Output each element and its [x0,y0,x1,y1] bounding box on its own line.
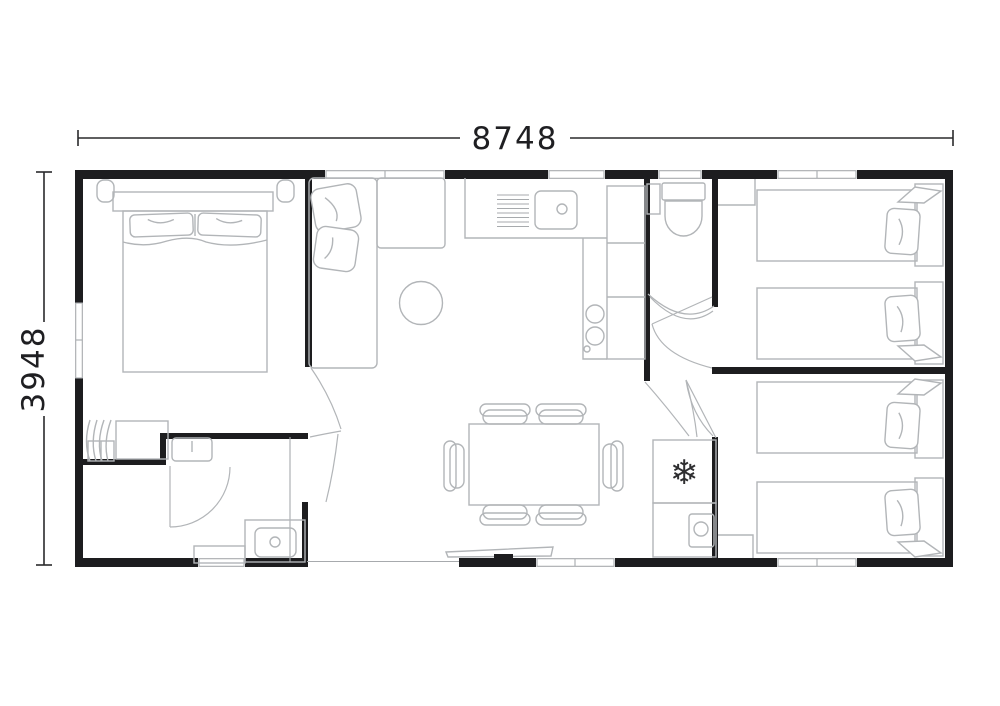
hob-burner [586,327,604,345]
dining-table [469,424,599,505]
pillow [885,489,921,536]
window [659,171,701,179]
washbasin [172,438,212,461]
chair [536,505,586,525]
master-bedroom [87,180,295,461]
wc [647,183,714,319]
window [326,171,444,179]
door-leaf [652,297,712,324]
toilet-tank [662,183,705,200]
nightstand-left [97,180,114,202]
height-dimension-label: 3948 [16,326,52,413]
dimension-left: 3948 [16,172,52,565]
duvet-fold [123,238,267,245]
entrance-door-hinge [494,554,513,564]
shower-drain [270,537,280,547]
fridge-icon: ❄ [670,453,699,493]
headboard [113,192,273,211]
pillow [310,182,363,233]
cabinet [653,503,716,557]
floor-plan-page: 8748 3948 [0,0,1000,706]
floor-plan-canvas: 8748 3948 [0,0,1000,706]
sink-drain [557,204,567,214]
pillow [130,213,194,237]
sofa-corner [377,178,445,248]
window [778,171,856,179]
window [549,171,604,179]
door-leaf [686,380,716,438]
bathroom [170,437,305,563]
closet [718,179,755,205]
living-room [309,178,445,368]
bedroom-3 [718,379,943,558]
closet [718,535,753,558]
sink [535,191,577,229]
door-arc [652,324,712,368]
hob-burner [586,305,604,323]
hanging-rail [87,420,115,461]
pillow [312,225,359,272]
bath-mat [194,546,245,563]
dimension-top: 8748 [78,121,953,157]
round-table [400,282,443,325]
hallway-doors [310,297,716,502]
door-leaf [311,368,341,429]
pillow [885,295,921,342]
water-heater [689,514,714,547]
toilet-bowl [665,201,702,236]
chair [480,404,530,424]
door-leaf [326,434,338,502]
grill-icon [497,195,529,227]
bedroom-2 [718,179,943,364]
window [537,559,614,567]
tall-unit [607,186,645,359]
chair [603,441,623,491]
nightstand-right [277,180,294,202]
hob-knob [584,346,590,352]
window [778,559,856,567]
cushion [898,541,941,557]
kitchen [465,178,645,359]
counter [465,178,607,238]
door-leaf [310,431,341,437]
pillow [884,208,920,255]
water-heater-dial [694,522,708,536]
pillow [198,213,262,237]
chair [536,404,586,424]
pillow [884,402,920,449]
width-dimension-label: 8748 [472,121,559,157]
fridge-unit: ❄ [653,440,716,557]
window [76,303,83,378]
chair [480,505,530,525]
dining-area [444,404,623,525]
door-leaf [645,382,689,436]
door-arc [170,467,230,527]
chair [444,441,464,491]
